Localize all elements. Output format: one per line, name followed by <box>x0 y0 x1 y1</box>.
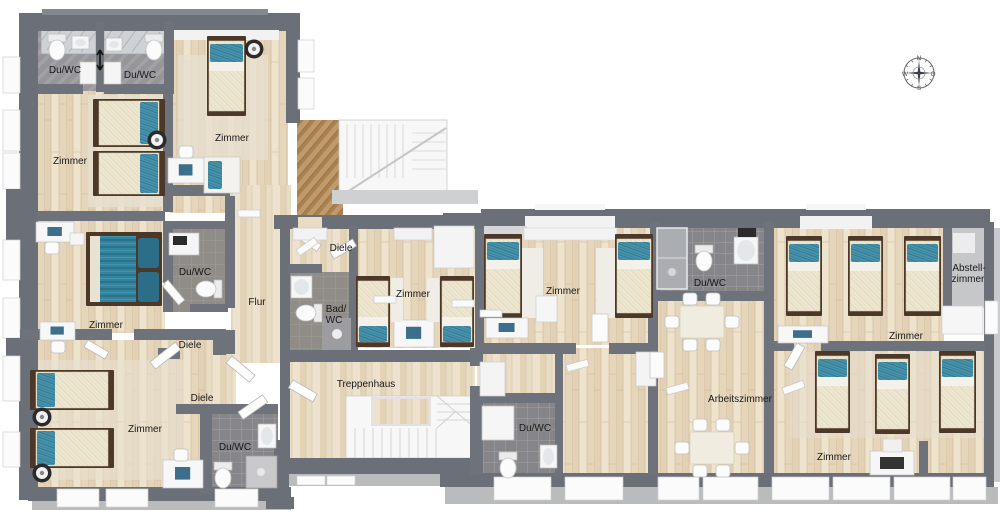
svg-text:Zimmer: Zimmer <box>546 286 581 297</box>
svg-text:Zimmer: Zimmer <box>128 424 163 435</box>
svg-text:Du/WC: Du/WC <box>519 423 551 434</box>
svg-text:O: O <box>930 71 935 78</box>
svg-text:Du/WC: Du/WC <box>49 65 81 76</box>
svg-text:Zimmer: Zimmer <box>889 331 924 342</box>
svg-text:Du/WC: Du/WC <box>124 70 156 81</box>
svg-text:Arbeitszimmer: Arbeitszimmer <box>708 394 773 405</box>
svg-text:N: N <box>917 55 922 62</box>
svg-text:W: W <box>902 71 909 78</box>
svg-text:WC: WC <box>326 315 343 326</box>
svg-text:Abstell-: Abstell- <box>952 263 985 274</box>
svg-text:Du/WC: Du/WC <box>694 278 726 289</box>
svg-text:Zimmer: Zimmer <box>215 133 250 144</box>
svg-text:Treppenhaus: Treppenhaus <box>337 379 396 390</box>
svg-text:Diele: Diele <box>179 340 202 351</box>
svg-text:S: S <box>917 85 922 92</box>
svg-text:zimmer: zimmer <box>952 274 985 285</box>
svg-text:Du/WC: Du/WC <box>219 442 251 453</box>
svg-text:Flur: Flur <box>248 297 266 308</box>
svg-text:Zimmer: Zimmer <box>89 320 124 331</box>
svg-text:Diele: Diele <box>330 243 353 254</box>
svg-text:Bad/: Bad/ <box>326 304 347 315</box>
svg-text:Zimmer: Zimmer <box>817 452 852 463</box>
svg-text:Zimmer: Zimmer <box>53 156 88 167</box>
svg-text:Du/WC: Du/WC <box>179 267 211 278</box>
svg-text:Diele: Diele <box>191 393 214 404</box>
svg-text:Zimmer: Zimmer <box>396 289 431 300</box>
